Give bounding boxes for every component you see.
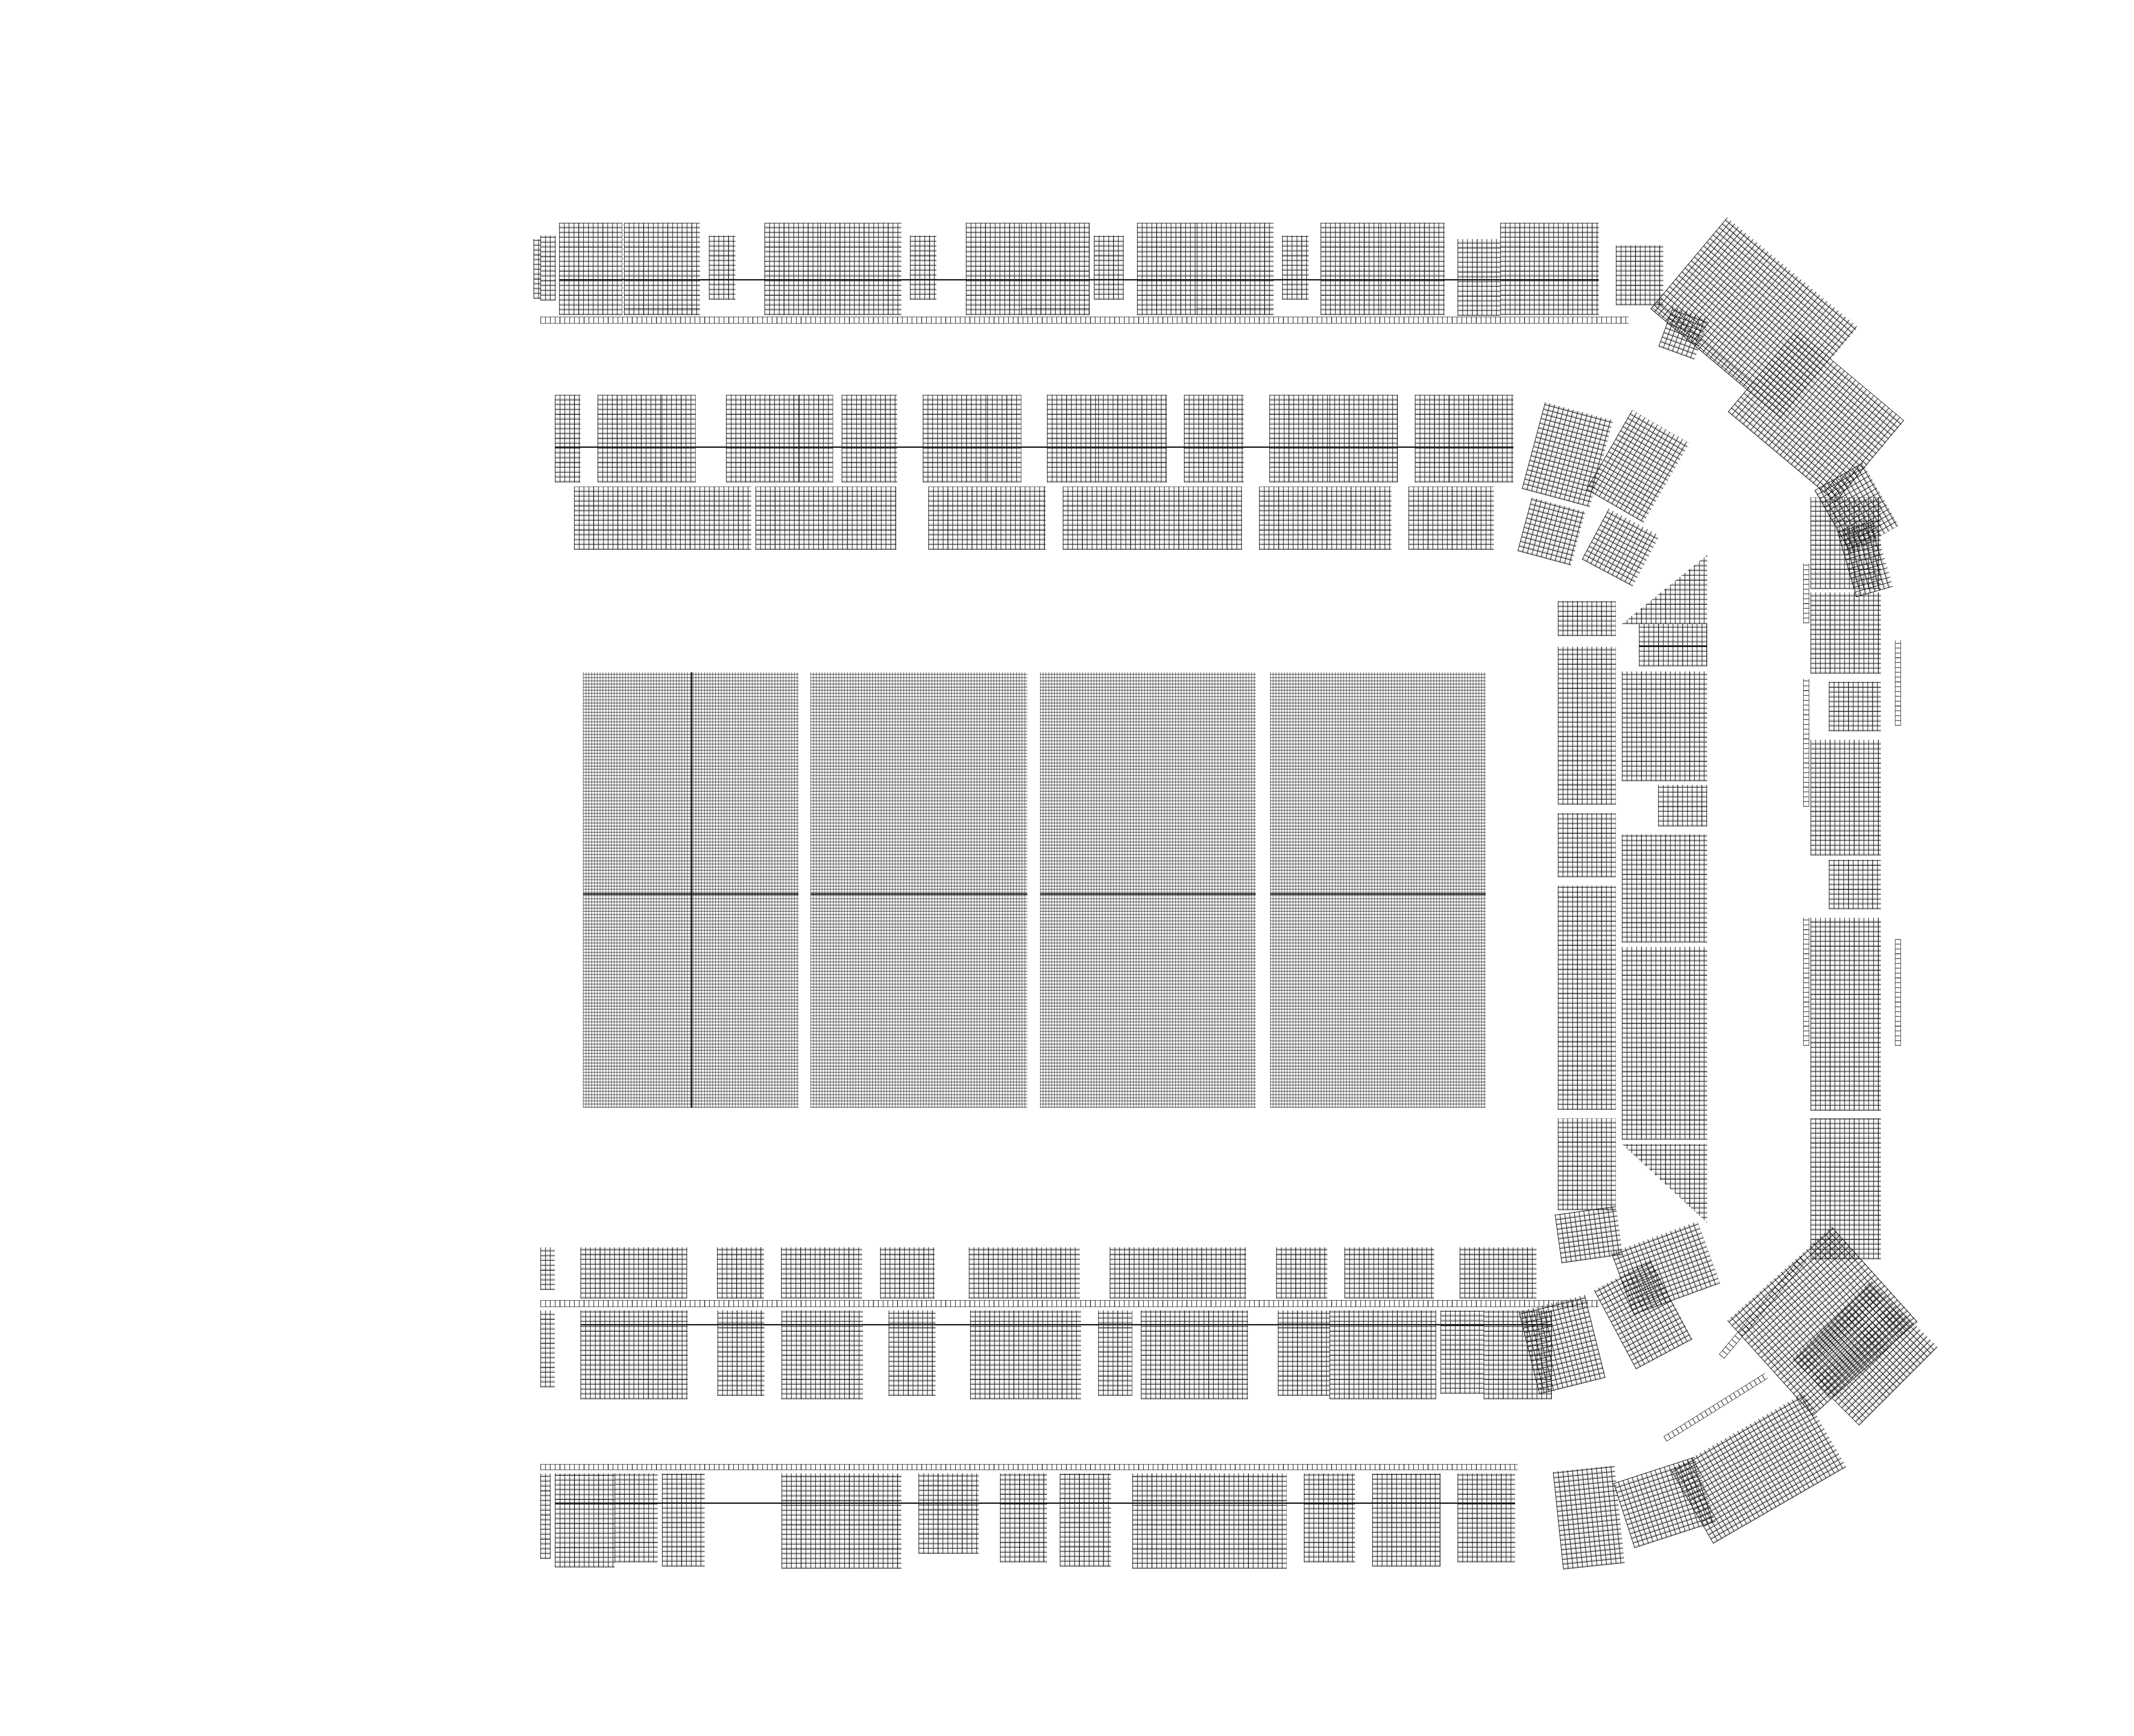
seat-section-31[interactable] [987, 395, 1021, 482]
seat-section-3[interactable] [559, 223, 622, 315]
seat-section-24[interactable] [555, 395, 580, 482]
aisle-line-6 [1639, 645, 1707, 647]
seat-section-103[interactable] [1460, 1247, 1536, 1298]
seat-section-119[interactable] [555, 1473, 615, 1567]
seat-section-25[interactable] [598, 395, 662, 482]
seat-section-74[interactable] [1803, 918, 1809, 1046]
seat-section-109[interactable] [889, 1310, 936, 1396]
seat-section-37[interactable] [1415, 395, 1449, 482]
seat-section-124[interactable] [1000, 1473, 1047, 1562]
seat-section-6[interactable] [764, 223, 820, 315]
seat-section-41[interactable] [928, 487, 1046, 550]
seat-section-10[interactable] [1021, 223, 1090, 315]
seat-section-128[interactable] [1372, 1473, 1440, 1567]
seat-section-95[interactable] [580, 1247, 687, 1298]
seat-map-viewport [0, 0, 2134, 1736]
seat-section-33[interactable] [1098, 395, 1167, 482]
seat-section-42[interactable] [1063, 487, 1242, 550]
seat-section-117[interactable] [540, 1464, 1518, 1470]
seat-section-121[interactable] [662, 1473, 705, 1567]
seat-section-69[interactable] [1829, 860, 1881, 909]
seat-section-123[interactable] [918, 1473, 979, 1554]
seat-section-15[interactable] [1321, 223, 1381, 315]
seat-section-105[interactable] [540, 1310, 555, 1387]
seat-section-2[interactable] [540, 236, 556, 301]
seat-section-39[interactable] [574, 487, 751, 550]
seat-section-100[interactable] [1110, 1247, 1246, 1298]
seat-section-72[interactable] [1803, 563, 1809, 623]
seat-section-102[interactable] [1344, 1247, 1434, 1298]
seat-section-76[interactable] [1895, 939, 1901, 1046]
seat-section-12[interactable] [1137, 223, 1197, 315]
seat-section-9[interactable] [966, 223, 1021, 315]
seat-section-104[interactable] [540, 1300, 1599, 1307]
seat-section-62[interactable] [1622, 834, 1707, 942]
seat-section-75[interactable] [1895, 640, 1901, 726]
seat-section-38[interactable] [1449, 395, 1513, 482]
seat-section-35[interactable] [1269, 395, 1329, 482]
seat-section-61[interactable] [1658, 785, 1707, 826]
aisle-line-5 [691, 672, 692, 1108]
seat-section-94[interactable] [540, 1247, 555, 1290]
seat-section-68[interactable] [1810, 740, 1881, 855]
seat-section-4[interactable] [624, 223, 700, 315]
seat-section-118[interactable] [540, 1473, 551, 1559]
seat-section-96[interactable] [717, 1247, 764, 1298]
seat-section-27[interactable] [726, 395, 799, 482]
seat-section-1[interactable] [533, 239, 540, 299]
seat-section-57[interactable] [1558, 1118, 1616, 1210]
aisle-line-10 [555, 1503, 1515, 1504]
seat-section-5[interactable] [709, 236, 735, 300]
seat-section-14[interactable] [1282, 236, 1309, 300]
seat-section-53[interactable] [1558, 601, 1616, 636]
seat-section-70[interactable] [1810, 918, 1881, 1111]
seat-section-115[interactable] [1440, 1310, 1484, 1394]
seat-section-18[interactable] [1500, 223, 1599, 315]
aisle-line-9 [580, 1324, 1552, 1325]
seat-section-50[interactable] [810, 672, 1027, 1108]
seat-section-129[interactable] [1458, 1473, 1515, 1562]
seat-section-97[interactable] [781, 1247, 862, 1298]
seat-section-11[interactable] [1094, 236, 1124, 300]
aisle-line-4 [1270, 893, 1486, 895]
seat-section-52[interactable] [1270, 672, 1486, 1108]
seat-section-111[interactable] [1098, 1310, 1132, 1396]
seat-section-20[interactable] [540, 317, 1629, 324]
seat-section-99[interactable] [969, 1247, 1080, 1298]
seat-section-36[interactable] [1329, 395, 1398, 482]
seat-section-101[interactable] [1276, 1247, 1327, 1298]
seat-section-125[interactable] [1060, 1473, 1111, 1567]
seat-section-48[interactable] [1582, 508, 1660, 586]
aisle-line-8 [555, 446, 1513, 448]
seat-section-107[interactable] [717, 1310, 764, 1396]
seat-section-8[interactable] [910, 236, 936, 300]
seat-section-22[interactable] [1021, 308, 1090, 315]
seat-section-23[interactable] [1197, 308, 1274, 315]
seat-section-64[interactable] [1622, 1144, 1707, 1223]
seat-section-44[interactable] [1408, 487, 1494, 550]
seat-section-126[interactable] [1132, 1473, 1287, 1569]
seat-section-93[interactable] [1553, 1465, 1624, 1570]
seat-section-60[interactable] [1622, 671, 1707, 781]
seat-section-56[interactable] [1558, 886, 1616, 1110]
seat-section-120[interactable] [615, 1473, 658, 1562]
seat-section-55[interactable] [1558, 813, 1616, 877]
seat-section-30[interactable] [923, 395, 987, 482]
seat-section-73[interactable] [1803, 679, 1809, 807]
seat-section-113[interactable] [1278, 1310, 1329, 1396]
seat-section-127[interactable] [1304, 1473, 1355, 1562]
seat-section-51[interactable] [1040, 672, 1256, 1108]
seat-section-67[interactable] [1829, 682, 1881, 731]
seat-section-63[interactable] [1622, 947, 1707, 1140]
aisle-line-7 [559, 279, 1599, 280]
seat-section-7[interactable] [820, 223, 901, 315]
seat-section-19[interactable] [1616, 245, 1663, 305]
seat-section-13[interactable] [1197, 223, 1274, 315]
seat-section-47[interactable] [1517, 497, 1585, 565]
seat-section-16[interactable] [1381, 223, 1445, 315]
seat-section-40[interactable] [755, 487, 896, 550]
seat-section-43[interactable] [1259, 487, 1391, 550]
seat-section-29[interactable] [842, 395, 897, 482]
seat-section-17[interactable] [1458, 239, 1500, 316]
seat-section-66[interactable] [1810, 592, 1881, 674]
seat-section-32[interactable] [1047, 395, 1098, 482]
seat-section-54[interactable] [1558, 647, 1616, 805]
seat-section-122[interactable] [781, 1473, 901, 1569]
aisle-line-3 [1040, 893, 1256, 895]
seat-section-59[interactable] [1639, 624, 1707, 666]
seat-section-98[interactable] [880, 1247, 935, 1298]
seat-section-21[interactable] [624, 308, 700, 315]
seat-section-26[interactable] [662, 395, 696, 482]
aisle-line-2 [810, 893, 1027, 895]
seat-section-28[interactable] [799, 395, 833, 482]
seat-section-34[interactable] [1184, 395, 1244, 482]
